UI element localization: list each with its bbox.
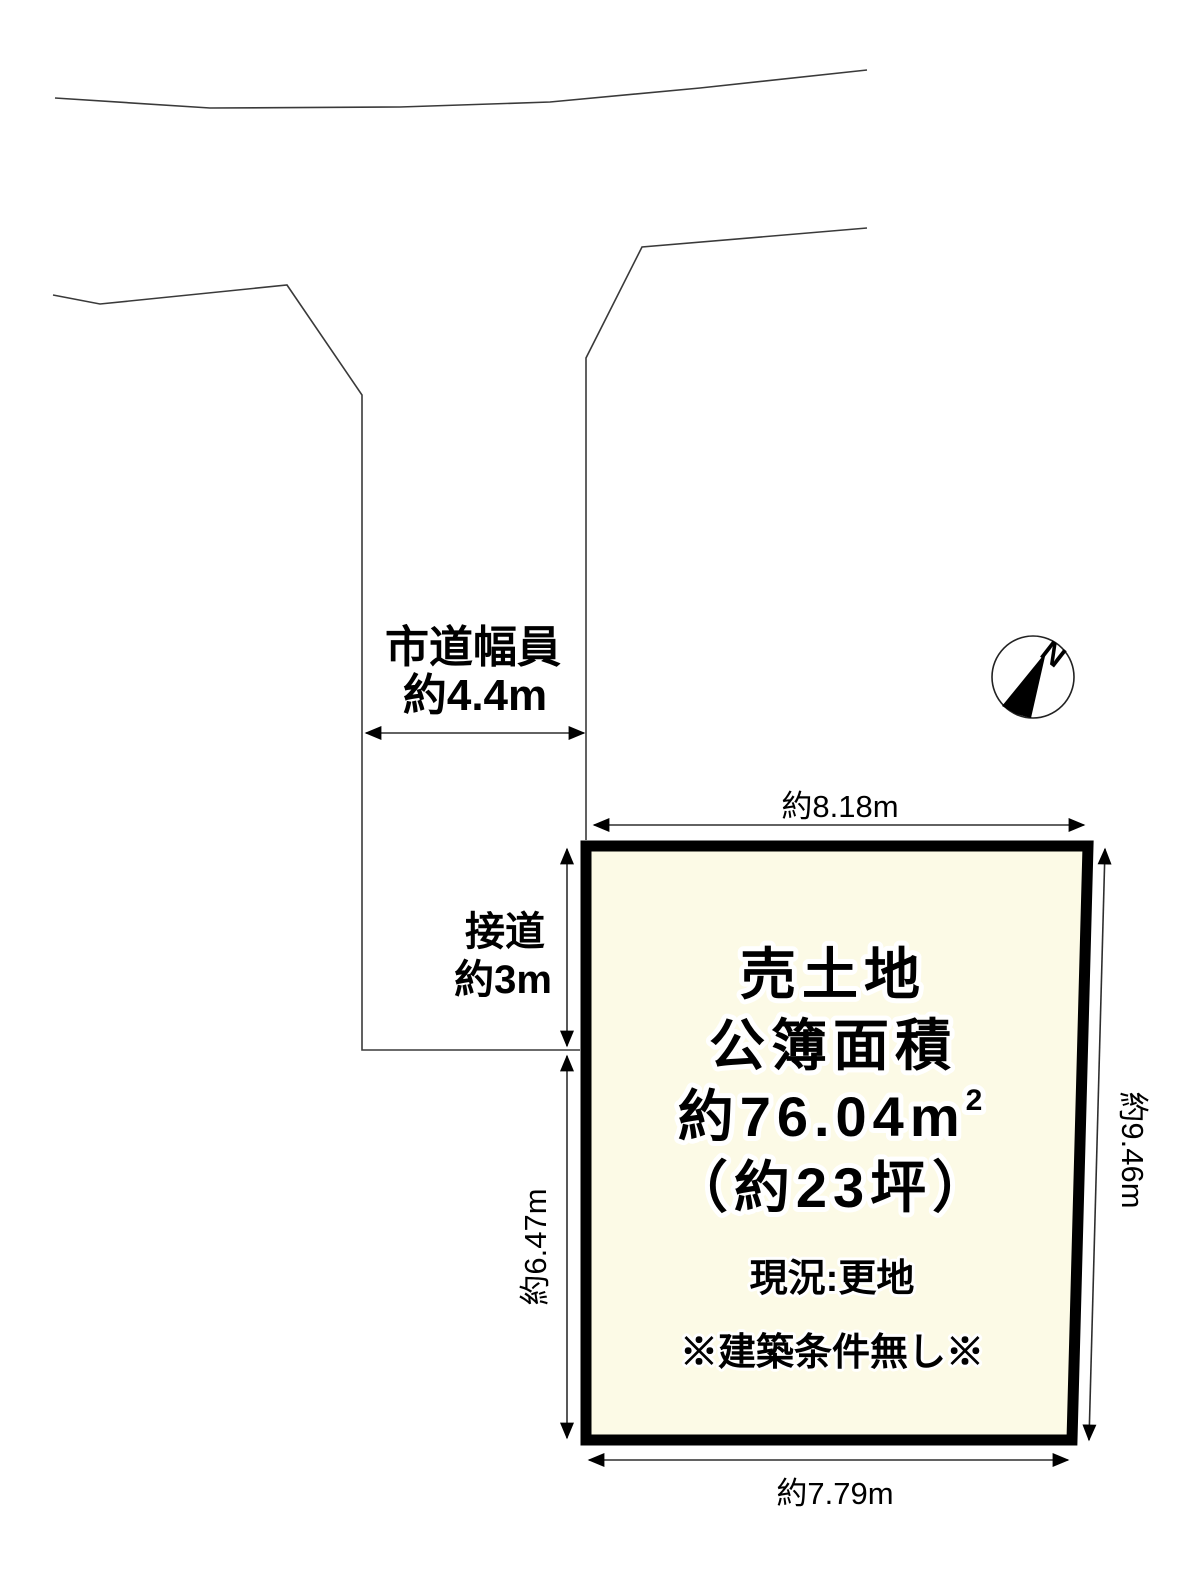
road-width-label: 市道幅員 bbox=[385, 623, 561, 672]
dim-left-label: 約6.47m bbox=[518, 1188, 553, 1305]
parcel-note: ※建築条件無し※ bbox=[680, 1332, 984, 1374]
parcel-area-value: 約76.04m2 bbox=[678, 1084, 989, 1148]
frontage-value: 約3m bbox=[454, 958, 552, 1002]
dim-bottom-label: 約7.79m bbox=[776, 1476, 893, 1511]
parcel-area-label: 公簿面積 bbox=[709, 1014, 957, 1077]
frontage-label: 接道 bbox=[465, 910, 545, 954]
dim-right-arrow bbox=[1089, 849, 1105, 1440]
site-plan: 市道幅員 約4.4m 接道 約3m 売土地 公簿面積 約76.04m2 （約23… bbox=[0, 0, 1190, 1569]
road-upper-boundary-line bbox=[55, 70, 867, 108]
dim-top-label: 約8.18m bbox=[781, 789, 898, 824]
parcel-status: 現況:更地 bbox=[750, 1258, 915, 1300]
area-superscript: 2 bbox=[966, 1084, 989, 1117]
area-value-text: 約76.04m bbox=[678, 1085, 966, 1148]
road-right-edge-line bbox=[586, 228, 867, 840]
road-width-value: 約4.4m bbox=[403, 671, 547, 720]
site-plan-drawing: 市道幅員 約4.4m 接道 約3m 売土地 公簿面積 約76.04m2 （約23… bbox=[0, 0, 1190, 1569]
dim-right-label: 約9.46m bbox=[1115, 1091, 1150, 1208]
compass: N bbox=[992, 635, 1074, 718]
parcel-title: 売土地 bbox=[740, 943, 926, 1006]
parcel-tsubo-value: （約23坪） bbox=[672, 1156, 994, 1219]
